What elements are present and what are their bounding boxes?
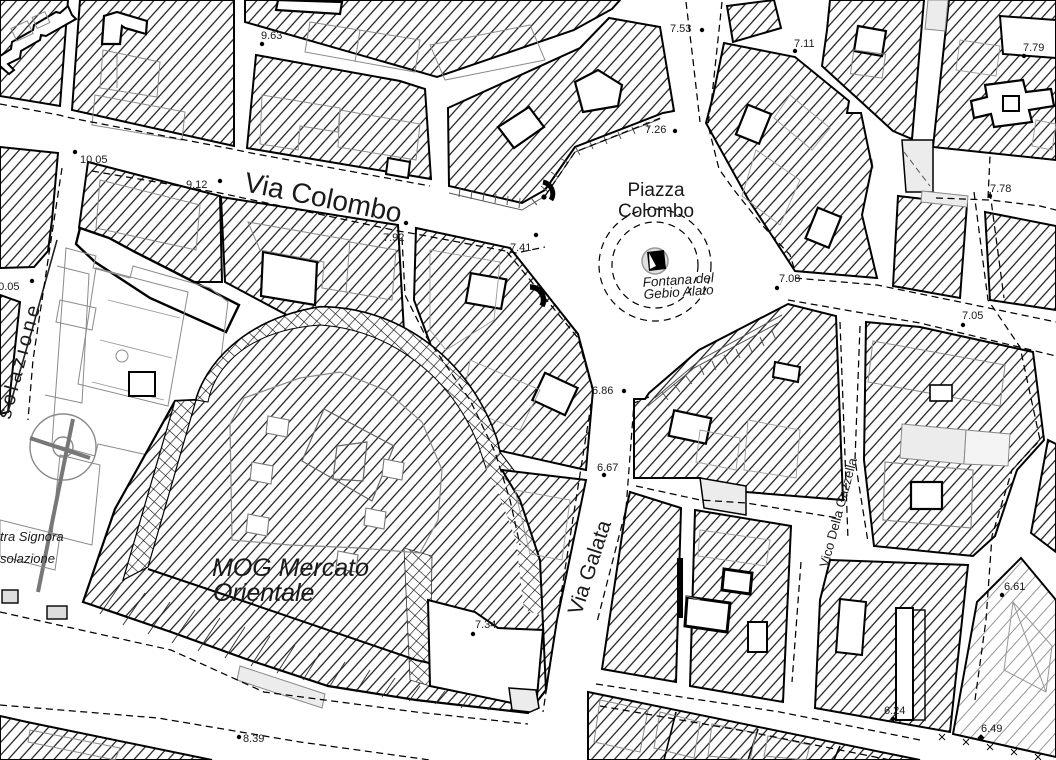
svg-text:7.11: 7.11	[794, 38, 815, 50]
svg-text:Colombo: Colombo	[618, 201, 694, 222]
svg-text:7.78: 7.78	[990, 183, 1011, 195]
svg-text:7.26: 7.26	[645, 124, 666, 136]
svg-text:Piazza: Piazza	[627, 180, 684, 201]
svg-text:Orientale: Orientale	[213, 579, 314, 607]
svg-text:7.41: 7.41	[510, 242, 531, 254]
svg-text:7.34: 7.34	[475, 619, 496, 631]
svg-text:7.92: 7.92	[383, 232, 404, 244]
svg-text:7.08: 7.08	[779, 273, 800, 285]
svg-text:8.39: 8.39	[243, 733, 264, 745]
svg-text:7.53: 7.53	[670, 23, 691, 35]
svg-text:6.67: 6.67	[597, 462, 618, 474]
svg-text:MOG Mercato: MOG Mercato	[212, 554, 369, 582]
svg-text:7.79: 7.79	[1023, 42, 1044, 54]
svg-text:9.12: 9.12	[186, 179, 207, 191]
svg-text:6.61: 6.61	[1004, 581, 1025, 593]
svg-text:9.63: 9.63	[261, 30, 282, 42]
svg-text:10.05: 10.05	[0, 281, 20, 293]
svg-text:7.05: 7.05	[962, 310, 983, 322]
svg-text:10.05: 10.05	[80, 154, 108, 166]
svg-text:6.49: 6.49	[981, 723, 1002, 735]
svg-text:tra Signora: tra Signora	[0, 529, 64, 544]
svg-text:solazione: solazione	[0, 551, 55, 566]
svg-text:6.86: 6.86	[592, 385, 613, 397]
svg-text:6.24: 6.24	[884, 705, 905, 717]
